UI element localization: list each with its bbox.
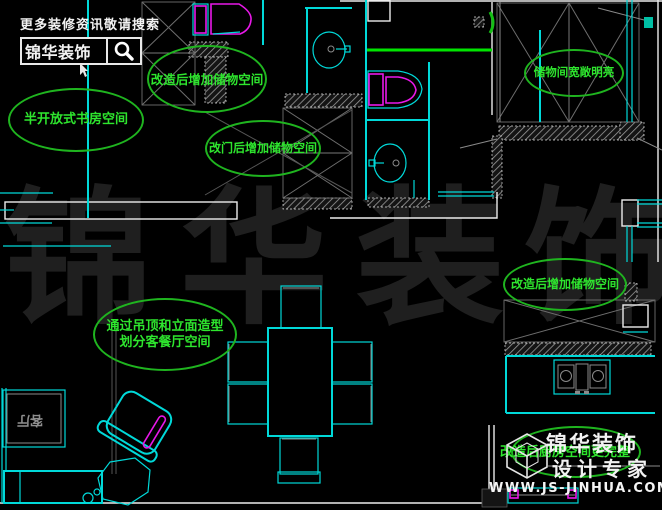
dining-chairs <box>228 286 372 483</box>
room-label-living: 客厅 <box>8 412 52 431</box>
sofa <box>4 471 102 503</box>
armchair <box>96 385 179 464</box>
banner-tagline: 更多装修资讯敬请搜索 <box>20 14 160 33</box>
floorplan-screenshot: 锦 华 装 饰 <box>0 0 662 510</box>
cooktop-icon <box>554 360 610 394</box>
banner-brand: 锦华装饰 <box>22 39 108 63</box>
sink-icon <box>313 32 350 68</box>
kitchen-counter <box>506 356 655 413</box>
dining-table <box>268 328 332 436</box>
toilet-icon <box>368 71 422 108</box>
annotation-storage-added: 改造后增加储物空间 <box>147 45 267 113</box>
annotation-open-study: 半开放式书房空间 <box>8 88 144 152</box>
green-highlight-line <box>367 12 653 50</box>
logo-website[interactable]: WWW.JS-JINHUA.COM <box>489 481 662 496</box>
annotation-storage-added-2: 改造后增加储物空间 <box>503 258 627 311</box>
sink-icon <box>369 144 406 182</box>
annotation-door-storage: 改门后增加储物空间 <box>205 120 321 177</box>
magnifier-icon <box>108 40 140 62</box>
annotation-ceiling-division: 通过吊顶和立面造型 划分客餐厅空间 <box>93 298 237 371</box>
annotation-bright-storage: 储物间宽敞明亮 <box>524 49 624 97</box>
cursor-arrow-icon <box>80 63 88 77</box>
search-box[interactable]: 锦华装饰 <box>20 37 142 65</box>
logo-subtitle: 设计专家 <box>552 453 652 482</box>
toilet-icon <box>193 4 251 35</box>
cube-logo-icon <box>505 432 549 484</box>
search-banner: 更多装修资讯敬请搜索 锦华装饰 <box>20 14 160 65</box>
